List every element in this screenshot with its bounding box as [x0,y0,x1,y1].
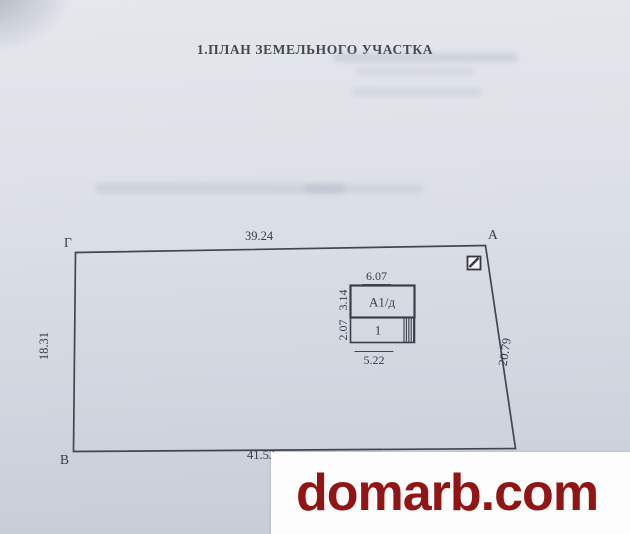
building-dim-height-lower: 2.07 [337,320,349,341]
corner-label-g: Г [64,236,72,250]
building-label-lower: 1 [375,324,382,337]
corner-label-v: В [60,453,69,467]
corner-label-a: А [488,228,498,242]
building-lower-block [351,318,415,343]
dimension-top: 39.24 [245,230,273,243]
dimension-left: 18.31 [38,332,51,360]
building-dim-width-bottom: 5.22 [355,351,394,366]
plot-boundary [74,246,516,452]
building-dim-height-upper: 3.14 [337,290,349,311]
building-label-upper: А1/д [369,296,395,309]
building-dim-width-top: 6.07 [362,270,391,285]
scanned-land-plan-page: 1.ПЛАН ЗЕМЕЛЬНОГО УЧАСТКА Г А В 39.24 18… [0,0,630,534]
watermark-box: domarb.com [271,452,630,534]
watermark-text: domarb.com [296,463,598,523]
hatched-porch-area [404,318,414,342]
square-with-diagonal-marker [468,257,481,270]
